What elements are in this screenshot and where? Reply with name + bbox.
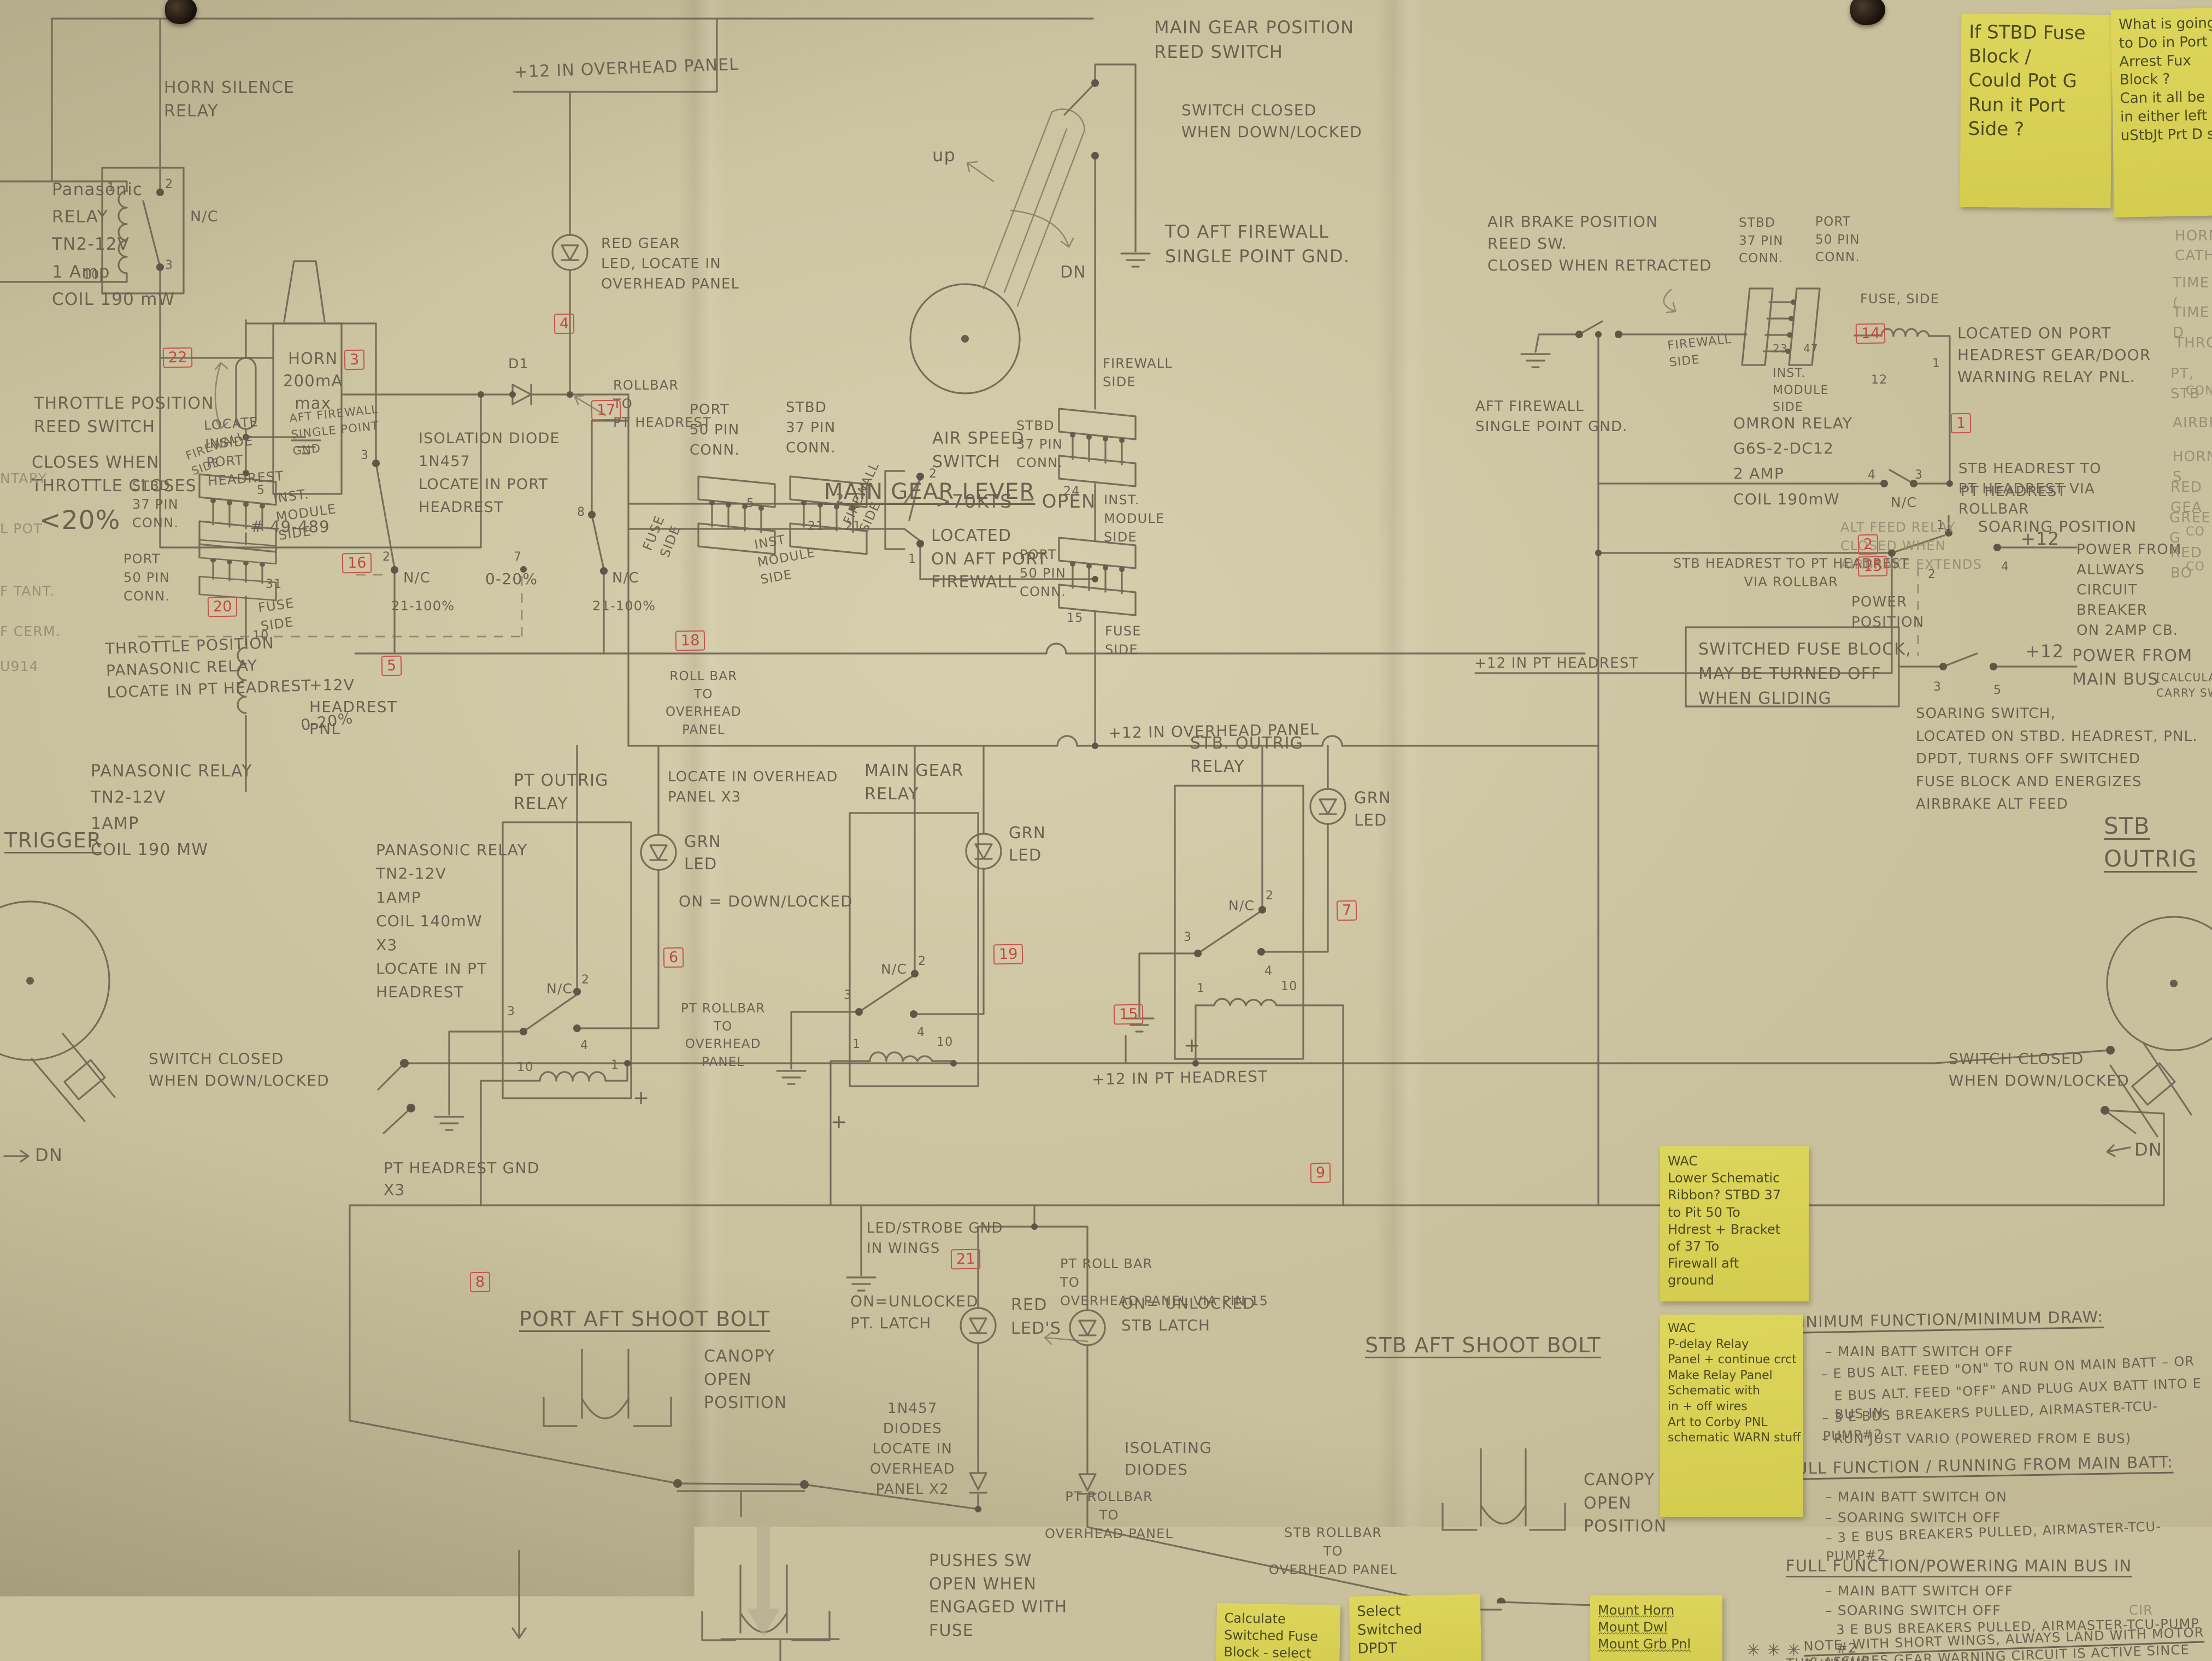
schematic-label: – MAIN BATT SWITCH OFF <box>1825 1581 2013 1601</box>
bolt-arrow-head <box>747 1609 780 1637</box>
schematic-label: – SOARING SWITCH OFF <box>1825 1601 2001 1621</box>
sticky-note-line: Art to Corby PNL <box>1668 1415 1798 1431</box>
schematic-label: TRIGGER <box>4 826 102 856</box>
sticky-note-line: P-delay Relay <box>1668 1337 1798 1353</box>
schematic-label: 5 <box>257 482 265 499</box>
schematic-label: PT HEADREST GND X3 <box>384 1157 539 1201</box>
schematic-label: SWITCH CLOSED WHEN DOWN/LOCKED <box>149 1048 330 1092</box>
schematic-label: 1N457 DIODES LOCATE IN OVERHEAD PANEL X2 <box>870 1399 955 1500</box>
schematic-label: +12 <box>2025 639 2064 664</box>
schematic-label: 4 <box>580 1037 589 1054</box>
schematic-label: LOCATED ON PORT HEADREST GEAR/DOOR WARNI… <box>1957 322 2151 387</box>
schematic-label: F TANT. <box>0 581 55 601</box>
schematic-label: SWITCH CLOSED WHEN DOWN/LOCKED <box>1181 99 1362 143</box>
schematic-label: U914 <box>0 657 39 676</box>
schematic-label: STB ROLLBAR TO OVERHEAD PANEL <box>1269 1523 1397 1579</box>
schematic-label: 7 <box>514 549 522 566</box>
schematic-label: ISOLATION DIODE 1N457 LOCATE IN PORT HEA… <box>419 427 560 519</box>
sticky-note-line: of 37 To <box>1668 1238 1803 1255</box>
schematic-label: PT OUTRIG RELAY <box>514 769 609 816</box>
schematic-label: SWITCHED FUSE BLOCK, MAY BE TURNED OFF W… <box>1698 637 1911 711</box>
schematic-label: CO <box>2186 558 2205 575</box>
red-number-tag: 15 <box>1858 556 1888 577</box>
sticky-note-line: Firewall aft <box>1668 1255 1803 1272</box>
schematic-label: CANOPY OPEN POSITION <box>1584 1469 1667 1539</box>
sticky-note-line: Block / <box>1969 44 2107 69</box>
wires-main-gear-relay <box>791 813 984 1205</box>
schematic-label: 2 <box>1928 566 1936 583</box>
schematic-label: 23 <box>1773 341 1788 356</box>
schematic-label: POWER POSITION <box>1851 592 1924 633</box>
red-number-tag: 21 <box>951 1249 981 1270</box>
schematic-label: CANOPY OPEN POSITION <box>704 1345 787 1415</box>
schematic-label: 3 <box>361 447 369 464</box>
red-number-tag: 19 <box>993 944 1023 965</box>
sticky-note-line: Run it Port <box>1968 92 2106 117</box>
schematic-label: HORN <box>2175 226 2212 246</box>
sticky-note-line: Arrest Fux <box>2119 51 2212 72</box>
sticky-note: WACP-delay RelayPanel + continue crctMak… <box>1660 1315 1803 1517</box>
schematic-label: STBD 37 PIN CONN. <box>786 398 836 458</box>
schematic-label: 21 <box>808 518 824 535</box>
schematic-label: 2 <box>1266 887 1274 904</box>
schematic-label: 21-100% <box>391 597 455 615</box>
schematic-label: 24 <box>1063 483 1080 500</box>
sticky-note-line: Select <box>1357 1601 1475 1622</box>
sticky-note: What is goingto Do in PortArrest FuxBloc… <box>2111 8 2212 217</box>
schematic-label: +12V HEADREST PNL <box>309 674 397 739</box>
schematic-label: CON <box>2186 382 2212 399</box>
schematic-label: 3 <box>1933 679 1942 696</box>
schematic-label: STB. OUTRIG RELAY <box>1190 732 1303 779</box>
sticky-note-line: Switched <box>1357 1619 1476 1640</box>
schematic-label: PT ROLLBAR TO OVERHEAD PANEL <box>1045 1487 1173 1543</box>
schematic-label: +12 IN PT HEADREST <box>1092 1065 1268 1090</box>
sticky-note-line: Lower Schematic <box>1668 1170 1803 1187</box>
schematic-label: 12 <box>1871 372 1887 388</box>
schematic-label: RED LED'S <box>1011 1294 1061 1340</box>
schematic-label: STB OUTRIG <box>2104 810 2212 875</box>
schematic-label: MAIN GEAR POSITION REED SWITCH <box>1154 15 1354 65</box>
schematic-label: 1 <box>1932 355 1940 372</box>
schematic-label: NTARY <box>0 469 47 488</box>
sticky-note: Mount HornMount DwlMount Grb Pnl <box>1590 1595 1722 1661</box>
schematic-label: DN <box>2134 1138 2162 1162</box>
schematic-label: – MAIN BATT SWITCH OFF <box>1825 1342 2013 1362</box>
red-number-tag: 20 <box>208 597 238 617</box>
schematic-label: 10 <box>517 1059 533 1076</box>
sticky-note-line: in either left <box>2120 107 2212 127</box>
schematic-label: 1 <box>908 551 916 568</box>
schematic-label: 2 <box>165 176 173 193</box>
schematic-label: OMRON RELAY G6S-2-DC12 2 AMP COIL 190mW <box>1733 411 1852 512</box>
schematic-label: PORT 50 PIN CONN. <box>1815 213 1860 267</box>
schematic-label: INST. MODULE SIDE <box>272 481 340 545</box>
schematic-label: FULL FUNCTION/POWERING MAIN BUS IN <box>1786 1555 2132 1577</box>
schematic-label: SOARING SWITCH, LOCATED ON STBD. HEADRES… <box>1916 703 2198 816</box>
red-number-tag: 8 <box>470 1272 491 1293</box>
sticky-note-line: uStbJt Prt D swite <box>2120 125 2212 145</box>
sticky-note-line: Make Relay Panel <box>1668 1368 1798 1384</box>
schematic-label: 1 <box>1937 517 1945 534</box>
schematic-label: 4 <box>1868 467 1876 484</box>
schematic-label: INST. MODULE SIDE <box>1773 365 1829 416</box>
schematic-label: DN <box>1060 261 1086 285</box>
schematic-label: 1 <box>1197 980 1205 997</box>
red-number-tag: 1 <box>1951 413 1972 434</box>
schematic-label: Panasonic RELAY TN2-12V 1 Amp COIL 190 m… <box>52 176 175 313</box>
schematic-label: – RUN JUST VARIO (POWERED FROM E BUS) <box>1822 1429 2131 1448</box>
red-number-tag: 15 <box>1114 1004 1144 1025</box>
schematic-label: 3 <box>844 987 852 1004</box>
schematic-label: D1 <box>508 354 529 374</box>
sticky-note-line: in + off wires <box>1668 1399 1798 1415</box>
schematic-label: FUSE SIDE <box>1105 622 1142 659</box>
schematic-label: THROTTLE POSITION PANASONIC RELAY LOCATE… <box>105 631 311 703</box>
schematic-label: PANASONIC RELAY TN2-12V 1AMP COIL 140mW … <box>376 838 527 1004</box>
sticky-note-line: schematic WARN stuff <box>1668 1430 1798 1446</box>
schematic-label: up <box>932 143 956 168</box>
red-number-tag: 5 <box>381 656 402 676</box>
dashed-throttle <box>138 573 522 637</box>
schematic-label: HORN 200mA max <box>283 347 343 415</box>
schematic-label: 5 <box>1993 682 2002 699</box>
schematic-label: PORT AFT SHOOT BOLT <box>519 1305 770 1334</box>
schematic-label: 1 <box>611 1057 619 1074</box>
schematic-label: N/C <box>190 207 219 227</box>
schematic-label: PORT 50 PIN CONN. <box>123 550 170 605</box>
sticky-note-line: DPDT <box>1357 1638 1476 1659</box>
schematic-label: 1 <box>107 179 115 196</box>
schematic-label: 4 <box>2001 558 2009 575</box>
schematic-label: SWITCH CLOSED WHEN DOWN/LOCKED <box>1949 1048 2129 1092</box>
schematic-label: TO AFT FIREWALL SINGLE POINT GND. <box>1165 220 1350 269</box>
schematic-label: F CERM. <box>0 622 61 641</box>
schematic-label: FUSE SIDE <box>257 594 298 636</box>
sticky-note: If STBD FuseBlock /Could Pot GRun it Por… <box>1960 14 2112 208</box>
schematic-label: 3 <box>1915 467 1923 484</box>
schematic-label: CATH <box>2175 246 2212 266</box>
red-number-tag: 4 <box>554 314 575 334</box>
sticky-note-line: to Do in Port <box>2119 33 2212 53</box>
schematic-label: PANASONIC RELAY TN2-12V 1AMP COIL 190 MW <box>91 758 252 863</box>
schematic-label: CO <box>2186 523 2205 540</box>
sticky-note-line: Ribbon? STBD 37 <box>1668 1187 1803 1204</box>
schematic-label: THROTTLE POSITION REED SWITCH <box>34 392 214 439</box>
schematic-label: + <box>831 1108 848 1136</box>
sticky-note-line: Mount Horn <box>1598 1602 1717 1619</box>
schematic-label: MAIN GEAR LEVER <box>824 476 1035 508</box>
schematic-label: AIR BRAKE POSITION REED SW. CLOSED WHEN … <box>1487 211 1712 276</box>
schematic-label: 4 <box>1264 963 1273 980</box>
red-number-tag: 9 <box>1310 1163 1331 1183</box>
sticky-note-line: to Pit 50 To <box>1668 1204 1803 1221</box>
schematic-label: ROLL BAR TO OVERHEAD PANEL <box>666 668 742 739</box>
red-number-tag: 6 <box>663 947 684 968</box>
schematic-label: 10 <box>1281 978 1297 995</box>
schematic-label: INST MODULE SIDE <box>753 526 820 589</box>
sticky-note-line: Block ? <box>2120 70 2212 90</box>
wires-wheel-switches <box>0 902 2212 1162</box>
schematic-label: STBD 37 PIN CONN. <box>1739 214 1784 268</box>
schematic-label: 10 <box>83 267 99 284</box>
wires-throttle <box>215 320 1585 791</box>
schematic-label: 2 <box>581 971 590 988</box>
schematic-label: 5 <box>746 495 755 512</box>
schematic-label: AIRBRA <box>2173 413 2212 433</box>
schematic-label: 4 <box>917 1024 925 1041</box>
sticky-note-line: Mount Dwl <box>1598 1619 1717 1636</box>
schematic-label: 3 <box>1184 929 1192 946</box>
schematic-label: +12 IN PT HEADREST <box>1474 653 1639 674</box>
schematic-label: RED GEAR LED, LOCATE IN OVERHEAD PANEL <box>601 234 739 294</box>
sticky-note-line: Can it all be <box>2120 89 2212 109</box>
schematic-label: AFT FIREWALL SINGLE POINT GND. <box>1475 397 1628 437</box>
schematic-label: PT ROLLBAR TO OVERHEAD PANEL <box>681 1000 765 1071</box>
schematic-label: PORT 50 PIN CONN. <box>1020 545 1066 601</box>
red-number-tag: 7 <box>1337 900 1357 921</box>
red-number-tag: 14 <box>1856 323 1886 344</box>
sticky-note-line: What is going <box>2119 14 2212 34</box>
schematic-label: 10 <box>937 1034 953 1051</box>
schematic-label: +12 <box>2021 527 2060 551</box>
sticky-note-line: WAC <box>1668 1321 1798 1337</box>
red-number-tag: 22 <box>163 347 193 368</box>
sticky-note-line: Side ? <box>1968 117 2106 142</box>
schematic-label: ✳ <box>1754 1555 1770 1581</box>
schematic-label: ON = DOWN/LOCKED <box>679 891 853 912</box>
sticky-note-line: Block - select <box>1223 1644 1334 1661</box>
red-number-tag: 18 <box>675 631 705 651</box>
schematic-label: 21-100% <box>592 597 656 615</box>
sticky-note-line: Mount Grb Pnl <box>1598 1636 1717 1653</box>
schematic-label: L POT <box>0 519 43 539</box>
wires-stb-outrig-relay <box>1139 786 1343 1205</box>
sticky-note-line: Could Pot G <box>1968 68 2106 93</box>
sticky-note-line: Schematic with <box>1668 1383 1798 1399</box>
schematic-label: FUSE, SIDE <box>1860 290 1939 308</box>
schematic-label: STBD 37 PIN CONN. <box>1016 416 1063 472</box>
sticky-note: SelectSwitchedDPDT <box>1349 1594 1481 1661</box>
schematic-label: HORN SILENCE RELAY <box>164 76 295 123</box>
schematic-label: N/C <box>1228 896 1255 916</box>
schematic-label: PUSHES SW OPEN WHEN ENGAGED WITH FUSE <box>929 1550 1067 1642</box>
schematic-label: 1 <box>852 1036 861 1053</box>
schematic-label: INST. MODULE SIDE <box>1104 491 1164 546</box>
schematic-label: 2 <box>383 549 391 566</box>
schematic-label: STB AFT SHOOT BOLT <box>1365 1331 1601 1360</box>
schematic-label: – MAIN BATT SWITCH ON <box>1825 1487 2007 1507</box>
schematic-label: + <box>1184 1032 1201 1059</box>
schematic-label: STBD 37 PIN CONN. <box>132 476 179 532</box>
schematic-label: THROT <box>2175 333 2212 354</box>
schematic-label: N/C <box>881 959 907 979</box>
schematic-label: GRN LED <box>684 830 721 875</box>
schematic-label: N/C <box>1891 493 1917 513</box>
schematic-label: PORT 50 PIN CONN. <box>690 400 740 461</box>
sticky-note-line: WAC <box>1668 1153 1803 1170</box>
schematic-label: 31 <box>266 576 282 593</box>
sticky-note-line: ground <box>1668 1272 1803 1289</box>
red-number-tag: 2 <box>1858 534 1879 555</box>
red-number-tag: 17 <box>591 400 621 421</box>
schematic-label: FIREWALL SIDE <box>1667 331 1734 372</box>
schematic-label: 15 <box>1067 610 1083 627</box>
schematic-label: 3 <box>507 1003 515 1020</box>
schematic-label: + <box>633 1084 650 1112</box>
red-number-tag: 3 <box>344 350 365 370</box>
schematic-label: LOCATE IN OVERHEAD PANEL X3 <box>668 767 838 808</box>
schematic-label: 2 <box>918 953 926 970</box>
sticky-note-line: Calculate <box>1224 1610 1335 1629</box>
schematic-label: DN <box>35 1143 63 1168</box>
sticky-note-line: Panel + continue crct <box>1668 1352 1798 1368</box>
schematic-label: 3 <box>165 257 173 274</box>
schematic-label: N/C <box>612 568 639 588</box>
sticky-note-line: Switched Fuse <box>1224 1627 1335 1646</box>
schematic-paper: HORN SILENCE RELAYPanasonic RELAY TN2-12… <box>0 0 2212 1661</box>
schematic-label: <20% <box>39 503 121 539</box>
sticky-note: CalculateSwitched FuseBlock - select <box>1216 1603 1340 1661</box>
schematic-label: [CALCULATE CARRY SW <box>2156 670 2212 701</box>
sticky-note: WACLower SchematicRibbon? STBD 37to Pit … <box>1660 1146 1809 1301</box>
schematic-label: FIREWALL SIDE <box>1103 354 1173 391</box>
schematic-label: LED/STROBE GND IN WINGS <box>867 1218 1003 1259</box>
schematic-label: 8 <box>577 504 585 521</box>
schematic-label: CIR <box>2129 1601 2153 1619</box>
sticky-note-line: Hdrest + Bracket <box>1668 1221 1803 1238</box>
schematic-label: AIR SPEED SWITCH <box>932 427 1025 474</box>
schematic-label: ON= UNLOCKED STB LATCH <box>1121 1293 1255 1336</box>
schematic-label: MAIN GEAR RELAY <box>864 759 964 806</box>
schematic-label: N/C <box>546 979 573 999</box>
schematic-label: ISOLATING DIODES <box>1125 1437 1212 1481</box>
schematic-label: 0-20% <box>485 568 538 590</box>
schematic-label: N/C <box>403 568 431 588</box>
schematic-label: 47 <box>1803 341 1819 356</box>
schematic-label: GRN LED <box>1354 787 1391 832</box>
red-number-tag: 16 <box>342 553 372 574</box>
schematic-label: ON=UNLOCKED PT. LATCH <box>850 1291 979 1334</box>
schematic-label: 21 <box>845 518 861 535</box>
schematic-label: STB HEADREST TO PT HEADREST VIA ROLLBAR <box>1958 459 2102 520</box>
sticky-note-line: If STBD Fuse <box>1969 20 2107 45</box>
schematic-label: GRN LED <box>1009 822 1046 867</box>
